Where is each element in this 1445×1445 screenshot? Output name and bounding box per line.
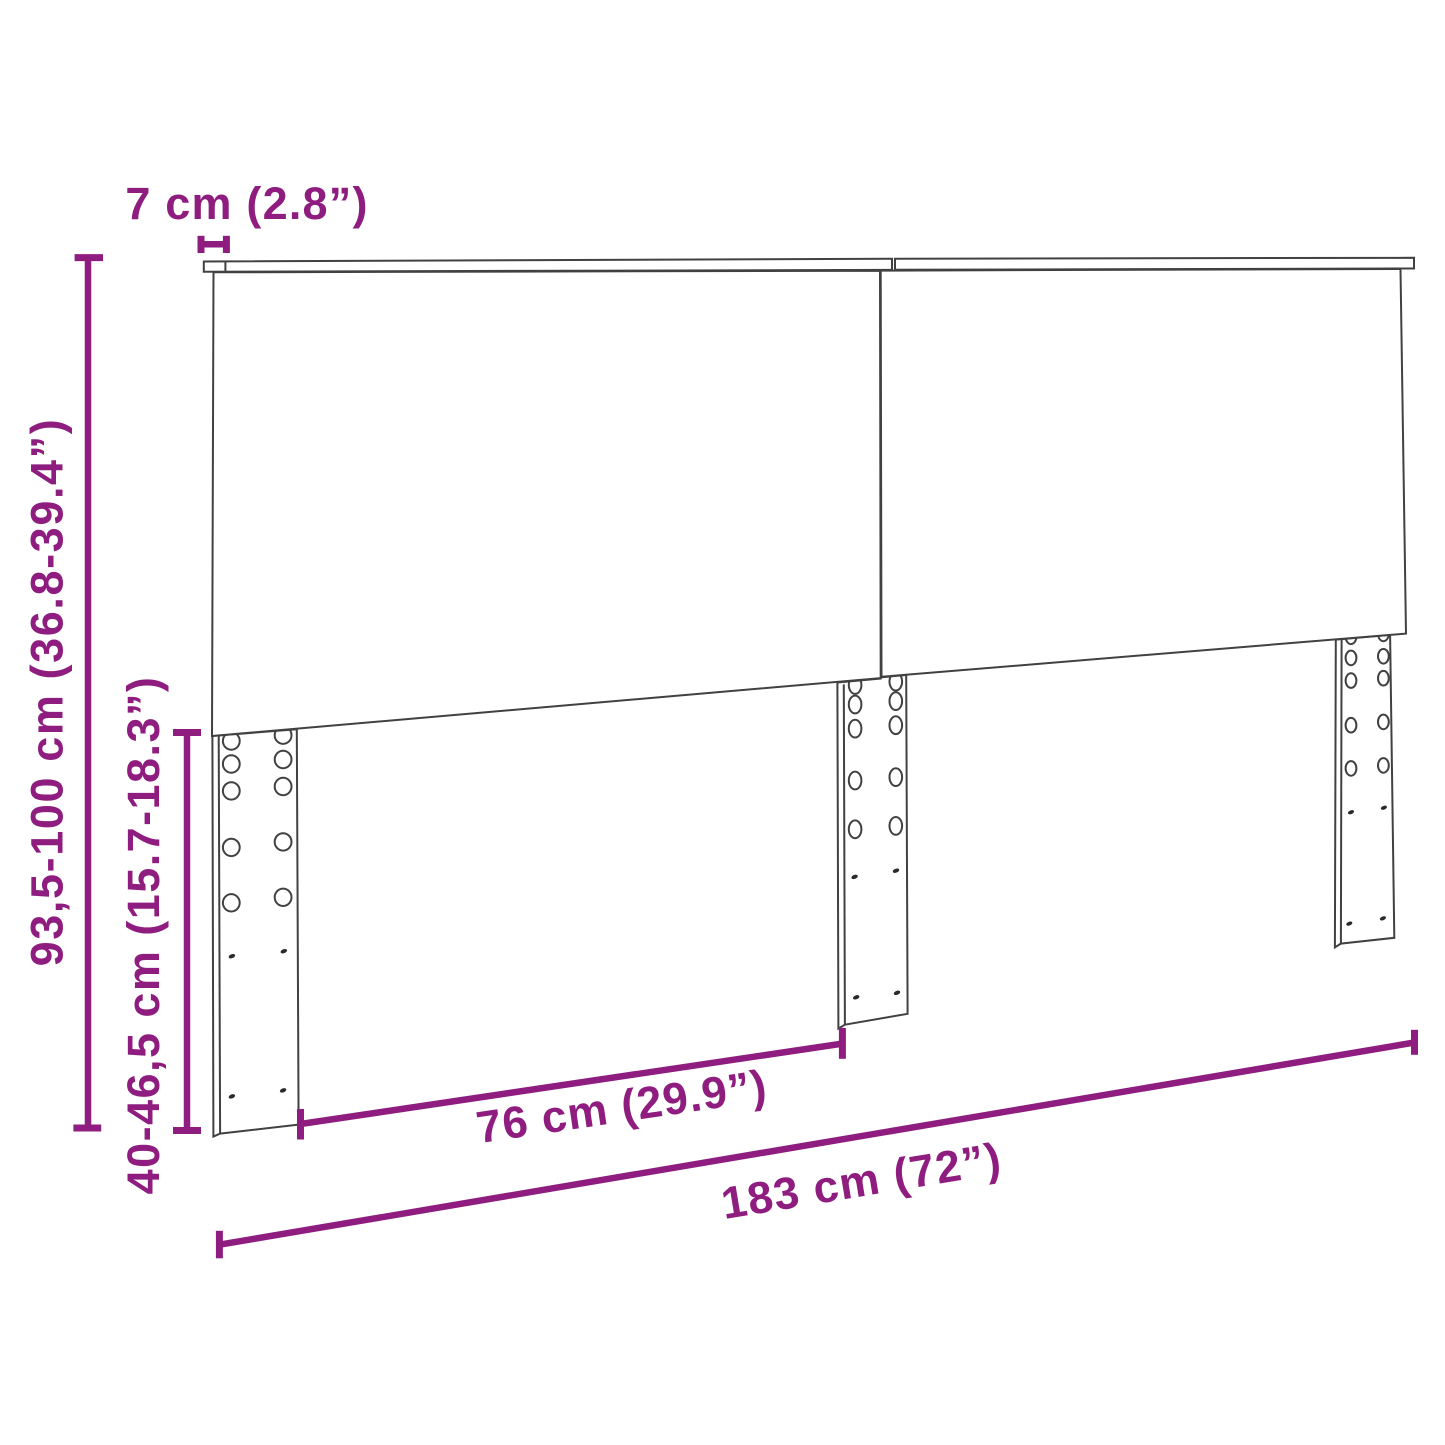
svg-text:40-46,5 cm (15.7-18.3”): 40-46,5 cm (15.7-18.3”) [118,676,169,1195]
svg-text:93,5-100 cm (36.8-39.4”): 93,5-100 cm (36.8-39.4”) [22,418,73,967]
svg-text:7 cm (2.8”): 7 cm (2.8”) [125,178,368,229]
